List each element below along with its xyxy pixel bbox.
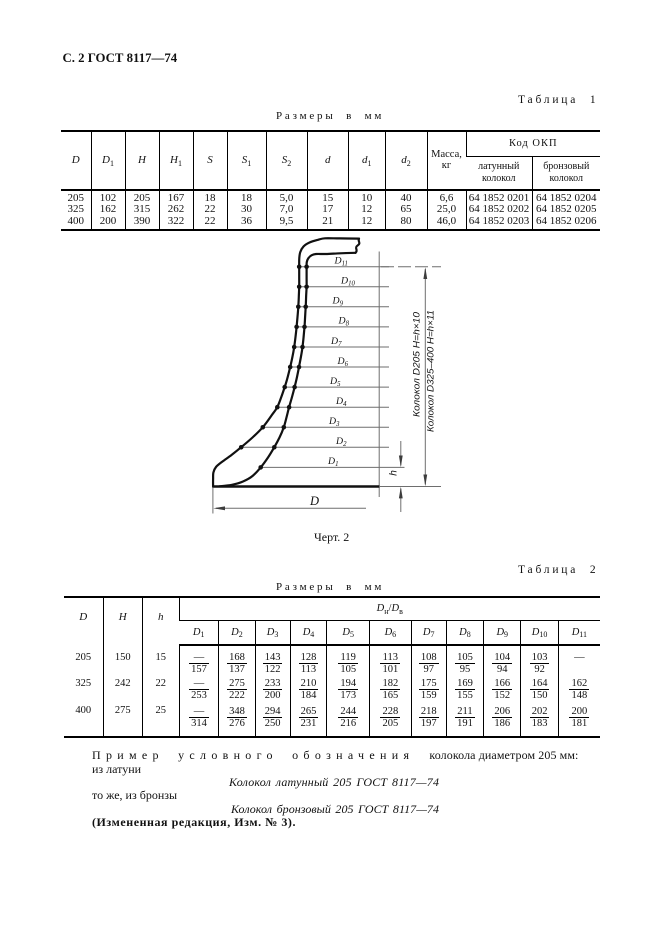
- svg-text:D1: D1: [327, 456, 338, 468]
- svg-text:Колокол D205 H=h×10: Колокол D205 H=h×10: [412, 311, 422, 417]
- svg-text:D2: D2: [335, 436, 347, 448]
- svg-text:Колокол D325–400 H=h×11: Колокол D325–400 H=h×11: [426, 310, 436, 432]
- svg-text:D4: D4: [335, 396, 347, 408]
- svg-text:D11: D11: [334, 256, 348, 268]
- svg-text:D6: D6: [337, 356, 349, 368]
- svg-text:D: D: [309, 494, 319, 508]
- svg-text:D10: D10: [340, 276, 355, 288]
- svg-text:D7: D7: [330, 336, 342, 348]
- svg-text:D9: D9: [332, 296, 344, 308]
- svg-text:D3: D3: [328, 416, 340, 428]
- svg-text:D5: D5: [329, 376, 341, 388]
- svg-text:D8: D8: [338, 316, 350, 328]
- svg-text:h: h: [389, 470, 400, 476]
